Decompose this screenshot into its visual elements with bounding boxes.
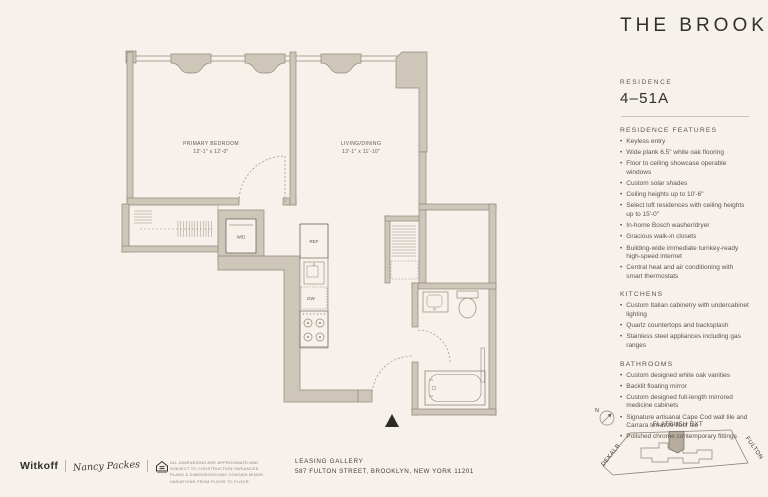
kitchen-item: • Custom Italian cabinetry with undercab… bbox=[620, 302, 750, 319]
north-label: N bbox=[595, 408, 599, 414]
bullet-icon: • bbox=[620, 180, 622, 189]
entry-door-swing bbox=[372, 356, 412, 396]
feature-item: • Ceiling heights up to 10'-6" bbox=[620, 191, 750, 200]
leasing-address: 587 FULTON STREET, BROOKLYN, NEW YORK 11… bbox=[295, 468, 474, 475]
kitchen-item: • Quartz countertops and backsplash bbox=[620, 322, 750, 331]
feature-item: • In-home Bosch washer/dryer bbox=[620, 222, 750, 231]
feature-item: • Custom solar shades bbox=[620, 180, 750, 189]
dishwasher-label: DW bbox=[307, 296, 315, 301]
bullet-icon: • bbox=[620, 433, 622, 442]
bullet-icon: • bbox=[620, 191, 622, 200]
kitchens-list: • Custom Italian cabinetry with undercab… bbox=[620, 302, 750, 350]
bedroom-closet bbox=[129, 205, 218, 246]
toilet bbox=[457, 291, 478, 318]
feature-item: • Building-wide immediate turnkey-ready … bbox=[620, 245, 750, 262]
bullet-icon: • bbox=[620, 372, 622, 381]
kitchens-heading: KITCHENS bbox=[620, 291, 750, 298]
bullet-icon: • bbox=[620, 414, 622, 431]
bathroom-item: • Custom designed white oak vanities bbox=[620, 372, 750, 381]
living-dining-label: LIVING/DINING bbox=[341, 141, 381, 147]
column-capital-icon bbox=[321, 54, 361, 73]
divider bbox=[621, 116, 749, 117]
disclaimer-text: ALL DIMENSIONS ARE APPROXIMATE AND SUBJE… bbox=[170, 460, 274, 485]
page-title: THE BROOK bbox=[620, 16, 750, 35]
bullet-icon: • bbox=[620, 245, 622, 262]
feature-item: • Gracious walk-in closets bbox=[620, 233, 750, 242]
feature-item: • Select loft residences with ceiling he… bbox=[620, 202, 750, 219]
bathrooms-heading: BATHROOMS bbox=[620, 361, 750, 368]
bullet-icon: • bbox=[620, 394, 622, 411]
bullet-icon: • bbox=[620, 202, 622, 219]
leasing-info: LEASING GALLERY 587 FULTON STREET, BROOK… bbox=[295, 458, 474, 475]
bathtub bbox=[425, 371, 485, 405]
north-compass-icon bbox=[600, 411, 614, 425]
bullet-icon: • bbox=[620, 138, 622, 147]
bullet-icon: • bbox=[620, 160, 622, 177]
bullet-icon: • bbox=[620, 302, 622, 319]
bathroom-item: • Backlit floating mirror bbox=[620, 383, 750, 392]
column-capital-icon bbox=[245, 54, 285, 73]
vanity-sink bbox=[423, 292, 448, 312]
features-heading: RESIDENCE FEATURES bbox=[620, 127, 750, 134]
bathroom-item: • Custom designed full-length mirrored m… bbox=[620, 394, 750, 411]
info-panel: THE BROOK RESIDENCE 4–51A RESIDENCE FEAT… bbox=[620, 16, 750, 445]
brochure-page: PRIMARY BEDROOM 12'-1" x 12'-0" LIVING/D… bbox=[0, 0, 768, 497]
shower-niche bbox=[481, 348, 485, 382]
bedroom-door-swing bbox=[239, 156, 285, 202]
feature-item: • Central heat and air conditioning with… bbox=[620, 264, 750, 281]
primary-bedroom-dims: 12'-1" x 12'-0" bbox=[193, 149, 228, 155]
feature-item: • Wide plank 6.5" white oak flooring bbox=[620, 149, 750, 158]
feature-item: • Floor to ceiling showcase operable win… bbox=[620, 160, 750, 177]
bullet-icon: • bbox=[620, 264, 622, 281]
closet-hangers-icon bbox=[178, 221, 212, 237]
logo-row: Witkoff Nancy Packes bbox=[20, 458, 169, 474]
footer: Witkoff Nancy Packes ALL DIMENSIONS ARE … bbox=[0, 450, 768, 490]
living-dining-dims: 13'-1" x 11'-10" bbox=[342, 149, 380, 155]
feature-item: • Keyless entry bbox=[620, 138, 750, 147]
refrigerator-label: REF bbox=[310, 239, 319, 244]
bathroom bbox=[423, 291, 485, 405]
bullet-icon: • bbox=[620, 149, 622, 158]
bullet-icon: • bbox=[620, 233, 622, 242]
bullet-icon: • bbox=[620, 322, 622, 331]
features-list: • Keyless entry • Wide plank 6.5" white … bbox=[620, 138, 750, 281]
residence-label: RESIDENCE bbox=[620, 79, 750, 86]
column-capital-icon bbox=[171, 54, 211, 73]
bathroom-door-swing bbox=[418, 330, 450, 362]
shaft-wall bbox=[396, 52, 427, 152]
closet-shelves-icon bbox=[392, 226, 416, 256]
residence-number: 4–51A bbox=[620, 90, 750, 107]
nancy-packes-logo: Nancy Packes bbox=[73, 459, 140, 473]
bullet-icon: • bbox=[620, 333, 622, 350]
closet-shelves-icon bbox=[134, 211, 152, 223]
witkoff-logo: Witkoff bbox=[20, 460, 58, 472]
logo-divider bbox=[147, 460, 148, 472]
core-wall bbox=[218, 256, 358, 402]
equal-housing-icon bbox=[155, 460, 169, 473]
bathroom-item: • Polished chrome contemporary fittings bbox=[620, 433, 750, 442]
bullet-icon: • bbox=[620, 222, 622, 231]
kitchen-item: • Stainless steel appliances including g… bbox=[620, 333, 750, 350]
logo-divider bbox=[65, 460, 66, 472]
entry-marker bbox=[385, 414, 399, 427]
washer-dryer-label: W/D bbox=[237, 235, 246, 240]
bathrooms-list: • Custom designed white oak vanities • B… bbox=[620, 372, 750, 442]
door-swings bbox=[239, 156, 450, 396]
bullet-icon: • bbox=[620, 383, 622, 392]
primary-bedroom-label: PRIMARY BEDROOM bbox=[183, 141, 239, 147]
walk-in-closet bbox=[391, 226, 418, 279]
bathroom-item: • Signature artisanal Cape Cod wall tile… bbox=[620, 414, 750, 431]
leasing-gallery-label: LEASING GALLERY bbox=[295, 458, 474, 465]
